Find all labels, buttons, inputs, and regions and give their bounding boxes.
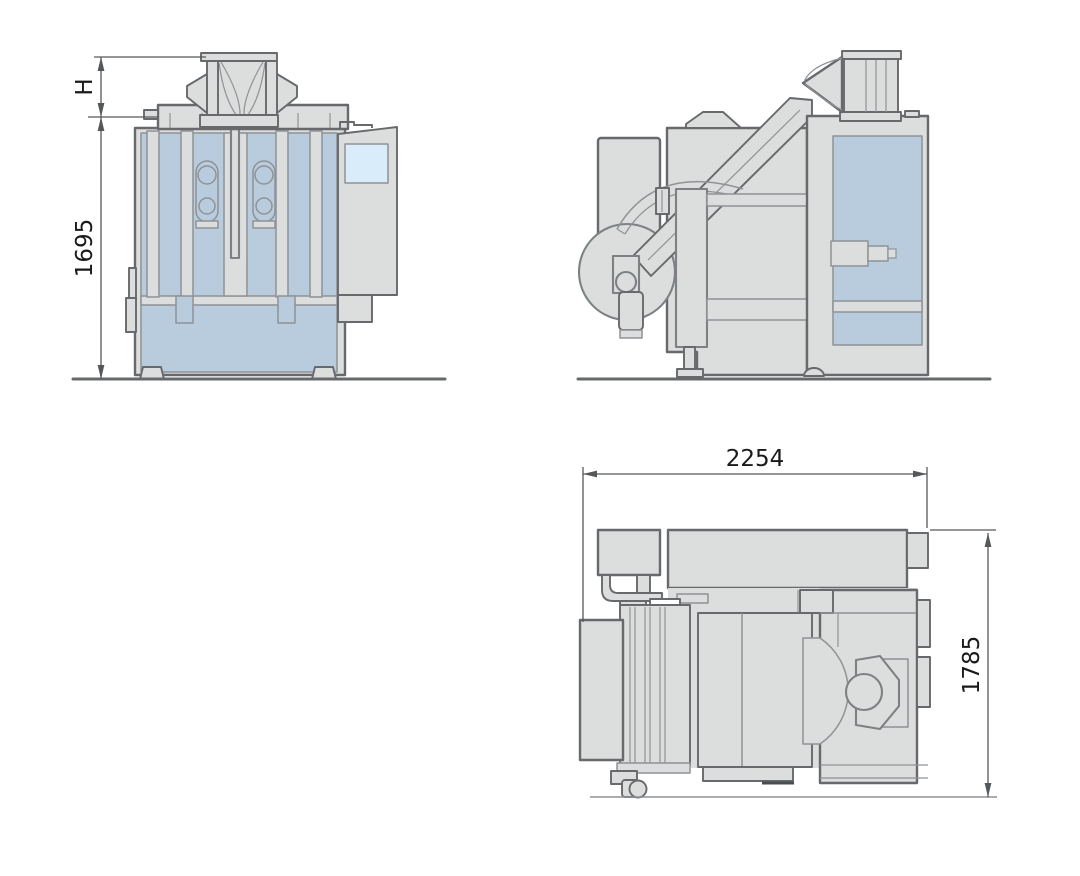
lower-band [141, 296, 337, 305]
funnel-tube [231, 125, 239, 258]
top-rear-band-ext [907, 533, 928, 568]
right-edge-box [917, 657, 930, 707]
hopper-top-bar [842, 51, 901, 59]
wheel-support-foot [620, 330, 642, 338]
dim-label-machine-depth: 1785 [959, 636, 985, 695]
frame-rail-upper [707, 194, 807, 206]
housing-top-step [905, 111, 919, 117]
center-base [703, 767, 793, 781]
door-strip [181, 131, 193, 297]
top-view: 2254 1785 [580, 446, 997, 798]
hinge-block [176, 296, 193, 323]
top-rail-strips [620, 605, 690, 765]
outlet-neck [868, 246, 888, 261]
handle-bar [253, 221, 275, 228]
wheel-hub-pin [616, 272, 636, 292]
hopper-base-bracket [200, 115, 278, 127]
dim-arrow-up [98, 117, 105, 131]
dim-arrow-up [98, 57, 105, 71]
side-panel-band [833, 301, 922, 312]
dim-arrow-left [583, 471, 597, 478]
dim-arrow-right [913, 471, 927, 478]
top-rear-band [668, 530, 907, 588]
right-edge-box [917, 600, 930, 647]
clipper-bore [846, 674, 882, 710]
handle-bar [196, 221, 218, 228]
dim-label-machine-height: 1695 [72, 219, 98, 278]
control-panel-tail [338, 295, 372, 322]
top-stub [637, 575, 650, 594]
hopper-post [266, 61, 277, 117]
outlet-tip [888, 249, 896, 258]
dim-arrow-down [98, 103, 105, 117]
dim-depth-top: 1785 [930, 530, 996, 797]
dim-arrow-down [98, 365, 105, 379]
door-strip [310, 131, 322, 297]
machine-foot-plate [677, 369, 703, 377]
top-back-panel [580, 620, 623, 760]
machine-foot-stem [684, 347, 695, 371]
hopper-base [840, 112, 901, 121]
machine-foot [312, 367, 336, 379]
front-view: H 1695 [72, 53, 445, 379]
control-screen [345, 144, 388, 183]
top-center-body [698, 613, 812, 767]
door-strip [276, 131, 288, 297]
side-protrusion-upper [129, 268, 136, 300]
machine-dimension-drawing: H 1695 [0, 0, 1080, 876]
caster-dome [804, 368, 824, 376]
dim-arrow-up [985, 533, 992, 547]
side-protrusion-lower [126, 298, 136, 332]
machine-foot [140, 367, 164, 379]
door-strip [147, 131, 159, 297]
top-pipe-bracket [602, 575, 662, 601]
frame-rail-lower [707, 299, 807, 320]
hopper-frame [844, 58, 898, 112]
caster-wheel [630, 781, 647, 798]
top-thin-bar [677, 594, 708, 603]
hopper-post [207, 61, 218, 117]
hopper-top-bar [201, 53, 277, 61]
technical-drawing-page: H 1695 [0, 0, 1080, 876]
hinge-block [278, 296, 295, 323]
lift-column [676, 189, 707, 347]
dim-label-hopper-height: H [72, 78, 98, 95]
dim-arrow-down [985, 783, 992, 797]
hopper-side [803, 51, 901, 121]
wheel-support [619, 292, 643, 330]
outlet-block [831, 241, 868, 266]
top-right-box [800, 590, 833, 613]
side-view [578, 51, 990, 379]
control-panel [338, 122, 397, 322]
body-peak [686, 112, 741, 128]
dim-label-machine-width: 2254 [726, 446, 785, 472]
top-hopper-box [598, 530, 660, 575]
